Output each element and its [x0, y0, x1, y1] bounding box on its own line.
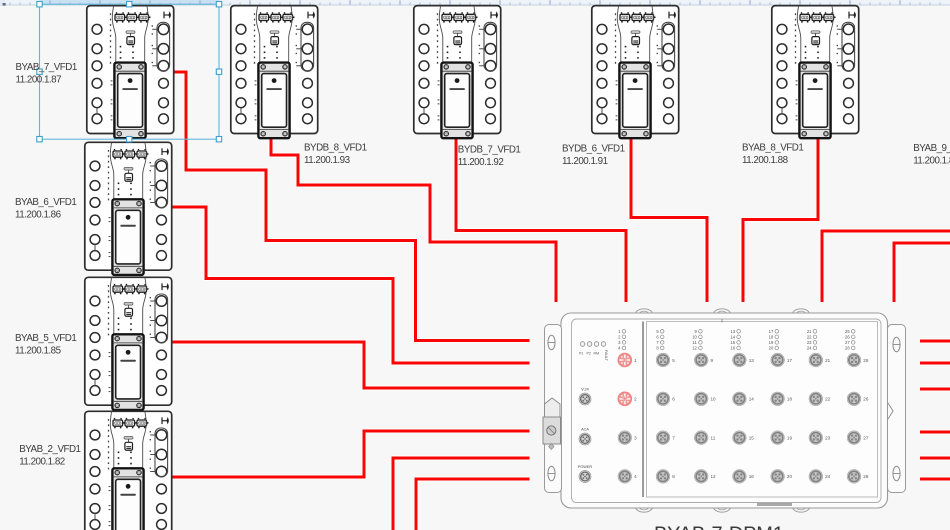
svg-text:16: 16 [749, 474, 755, 479]
svg-text:18: 18 [769, 334, 774, 339]
svg-text:1: 1 [634, 358, 637, 363]
svg-text:13: 13 [730, 329, 735, 334]
svg-text:15: 15 [749, 435, 755, 440]
svg-text:4: 4 [634, 474, 637, 479]
svg-text:10: 10 [692, 334, 697, 339]
svg-text:22: 22 [807, 334, 812, 339]
svg-text:24: 24 [807, 346, 812, 351]
svg-text:5: 5 [672, 358, 675, 363]
svg-text:2: 2 [634, 397, 637, 402]
svg-text:11.200.1.87: 11.200.1.87 [16, 75, 62, 86]
svg-text:25: 25 [845, 329, 850, 334]
svg-text:V.24: V.24 [581, 388, 588, 392]
svg-text:19: 19 [769, 340, 774, 345]
svg-text:6: 6 [672, 397, 675, 402]
svg-text:16: 16 [730, 346, 735, 351]
svg-text:11.200.1.89: 11.200.1.89 [913, 156, 950, 167]
svg-text:12: 12 [711, 474, 717, 479]
svg-text:20: 20 [787, 474, 793, 479]
svg-text:BYDB_6_VFD1: BYDB_6_VFD1 [562, 144, 625, 155]
svg-text:20: 20 [769, 346, 774, 351]
svg-text:22: 22 [825, 397, 831, 402]
svg-text:21: 21 [825, 358, 831, 363]
svg-text:BYAB-7-DPM1: BYAB-7-DPM1 [654, 524, 784, 530]
svg-text:17: 17 [787, 358, 793, 363]
svg-text:11.200.1.88: 11.200.1.88 [742, 155, 789, 166]
svg-text:15: 15 [730, 340, 735, 345]
svg-text:POWER: POWER [578, 465, 593, 469]
svg-text:BYAB_7_VFD1: BYAB_7_VFD1 [16, 62, 77, 73]
svg-text:11.200.1.92: 11.200.1.92 [458, 157, 504, 168]
svg-text:BYAB_5_VFD1: BYAB_5_VFD1 [15, 333, 76, 344]
svg-text:P2: P2 [587, 352, 591, 356]
svg-text:11: 11 [711, 435, 716, 440]
svg-text:23: 23 [825, 435, 831, 440]
svg-text:BYAB_2_VFD1: BYAB_2_VFD1 [19, 444, 80, 455]
svg-text:BYAB_6_VFD1: BYAB_6_VFD1 [15, 197, 76, 208]
svg-text:25: 25 [863, 358, 869, 363]
svg-text:28: 28 [845, 346, 850, 351]
svg-text:26: 26 [845, 334, 850, 339]
svg-text:BYDB_8_VFD1: BYDB_8_VFD1 [304, 143, 367, 154]
svg-text:21: 21 [807, 329, 812, 334]
svg-text:11.200.1.86: 11.200.1.86 [15, 210, 62, 221]
svg-text:11.200.1.82: 11.200.1.82 [19, 457, 65, 468]
svg-text:10: 10 [711, 397, 717, 402]
svg-text:ACA: ACA [581, 428, 589, 432]
svg-text:11.200.1.91: 11.200.1.91 [562, 156, 608, 167]
svg-text:14: 14 [749, 397, 755, 402]
svg-text:11.200.1.93: 11.200.1.93 [304, 155, 351, 166]
svg-text:BYAB_8_VFD1: BYAB_8_VFD1 [742, 142, 803, 153]
svg-text:BYDB_7_VFD1: BYDB_7_VFD1 [458, 145, 521, 156]
svg-text:BYAB_9_VFD1: BYAB_9_VFD1 [913, 143, 950, 154]
svg-text:27: 27 [863, 435, 869, 440]
svg-text:11: 11 [693, 340, 698, 345]
svg-text:18: 18 [787, 397, 793, 402]
svg-text:FAULT: FAULT [604, 350, 608, 362]
svg-text:28: 28 [863, 474, 869, 479]
svg-text:13: 13 [749, 358, 755, 363]
svg-text:11.200.1.85: 11.200.1.85 [15, 345, 62, 356]
svg-text:24: 24 [825, 474, 831, 479]
svg-text:RM: RM [594, 352, 600, 356]
svg-text:8: 8 [672, 474, 675, 479]
svg-text:9: 9 [711, 358, 714, 363]
svg-text:7: 7 [672, 435, 675, 440]
svg-text:23: 23 [807, 340, 812, 345]
svg-text:26: 26 [863, 397, 869, 402]
svg-text:19: 19 [787, 435, 793, 440]
svg-text:17: 17 [769, 329, 774, 334]
svg-text:14: 14 [730, 334, 735, 339]
svg-text:12: 12 [692, 346, 697, 351]
svg-text:P1: P1 [579, 352, 583, 356]
svg-text:3: 3 [634, 435, 637, 440]
svg-text:27: 27 [845, 340, 850, 345]
